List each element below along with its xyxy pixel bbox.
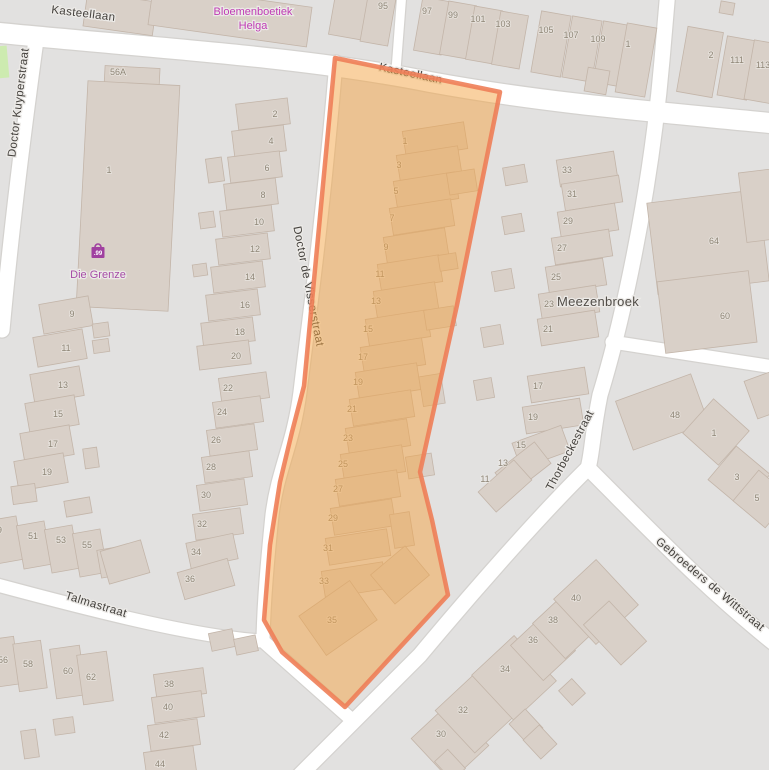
house-number-label: 33 (562, 165, 572, 175)
house-number-label: 113 (756, 60, 769, 70)
house-number-label: 40 (571, 593, 581, 603)
house-number-label: 48 (670, 410, 680, 420)
house-number-label: 101 (470, 14, 485, 24)
house-number-label: 64 (709, 236, 719, 246)
building (92, 338, 110, 353)
house-number-label: 34 (500, 664, 510, 674)
house-number-label: 38 (548, 615, 558, 625)
house-number-label: 17 (533, 381, 543, 391)
house-number-label: 53 (56, 535, 66, 545)
building (205, 157, 224, 183)
house-number-label: 36 (185, 574, 195, 584)
house-number-label: 18 (235, 327, 245, 337)
map-canvas[interactable]: KasteellaanKasteellaanDoctor Kuyperstraa… (0, 0, 769, 770)
poi-name-label: Helga (239, 20, 269, 32)
house-number-label: 3 (734, 472, 739, 482)
poi-name-label: Bloemenboetiek (214, 6, 293, 18)
house-number-label: 36 (528, 635, 538, 645)
house-number-label: 38 (164, 679, 174, 689)
building (502, 213, 525, 234)
place-name-label: Meezenbroek (557, 294, 639, 309)
building (719, 1, 735, 15)
house-number-label: 44 (155, 759, 165, 769)
house-number-label: 99 (448, 10, 458, 20)
house-number-label: 55 (82, 540, 92, 550)
house-number-label: 19 (528, 412, 538, 422)
house-number-label: 12 (250, 244, 260, 254)
house-number-label: 109 (590, 34, 605, 44)
house-number-label: 6 (264, 163, 269, 173)
house-number-label: 4 (268, 136, 273, 146)
house-number-label: 17 (48, 439, 58, 449)
house-number-label: 60 (63, 666, 73, 676)
house-number-label: 16 (240, 300, 250, 310)
house-number-label: 9 (69, 309, 74, 319)
house-number-label: 13 (498, 458, 508, 468)
house-number-label: 62 (86, 672, 96, 682)
house-number-label: 27 (557, 243, 567, 253)
house-number-label: 107 (563, 30, 578, 40)
house-number-label: 19 (42, 467, 52, 477)
building (11, 483, 37, 504)
house-number-label: 58 (23, 659, 33, 669)
house-number-label: 5 (754, 493, 759, 503)
house-number-label: 30 (436, 729, 446, 739)
house-number-label: 32 (197, 519, 207, 529)
house-number-label: 97 (422, 6, 432, 16)
building (53, 717, 75, 736)
house-number-label: 111 (730, 55, 744, 65)
house-number-label: 1 (106, 165, 111, 175)
house-number-label: 40 (163, 702, 173, 712)
building (198, 211, 215, 229)
house-number-label: 11 (61, 343, 70, 353)
house-number-label: 23 (544, 299, 554, 309)
house-number-label: 2 (272, 109, 277, 119)
house-number-label: 24 (217, 407, 227, 417)
house-number-label: 49 (0, 525, 2, 535)
map-viewport[interactable]: KasteellaanKasteellaanDoctor Kuyperstraa… (0, 0, 769, 770)
house-number-label: 8 (260, 190, 265, 200)
house-number-label: 20 (231, 351, 241, 361)
building (491, 268, 514, 291)
house-number-label: 25 (551, 272, 561, 282)
house-number-label: 103 (495, 19, 510, 29)
house-number-label: 13 (58, 380, 68, 390)
house-number-label: 51 (28, 531, 38, 541)
house-number-label: 14 (245, 272, 255, 282)
house-number-label: 29 (563, 216, 573, 226)
house-number-label: 28 (206, 462, 216, 472)
poi-name-label: Die Grenze (70, 269, 126, 281)
house-number-label: 26 (211, 435, 221, 445)
house-number-label: 21 (543, 324, 553, 334)
house-number-label: 34 (191, 547, 201, 557)
house-number-label: 11 (480, 474, 489, 484)
house-number-label: 32 (458, 705, 468, 715)
road (396, 0, 402, 70)
house-number-label: 56A (110, 67, 126, 77)
house-number-label: 42 (159, 730, 169, 740)
building (473, 378, 494, 401)
house-number-label: 22 (223, 383, 233, 393)
house-number-label: 1 (625, 39, 630, 49)
house-number-label: 30 (201, 490, 211, 500)
svg-text:.99: .99 (94, 251, 103, 257)
building (92, 322, 110, 338)
house-number-label: 15 (53, 409, 63, 419)
house-number-label: 1 (711, 428, 716, 438)
building (480, 324, 503, 347)
building (657, 271, 757, 354)
house-number-label: 56 (0, 655, 8, 665)
house-number-label: 31 (567, 189, 577, 199)
building (192, 263, 208, 277)
house-number-label: 105 (538, 25, 553, 35)
house-number-label: 15 (516, 440, 526, 450)
building (83, 447, 100, 469)
house-number-label: 95 (378, 1, 388, 11)
building (584, 67, 610, 94)
house-number-label: 2 (708, 50, 713, 60)
house-number-label: 10 (254, 217, 264, 227)
building (503, 164, 528, 186)
house-number-label: 60 (720, 311, 730, 321)
